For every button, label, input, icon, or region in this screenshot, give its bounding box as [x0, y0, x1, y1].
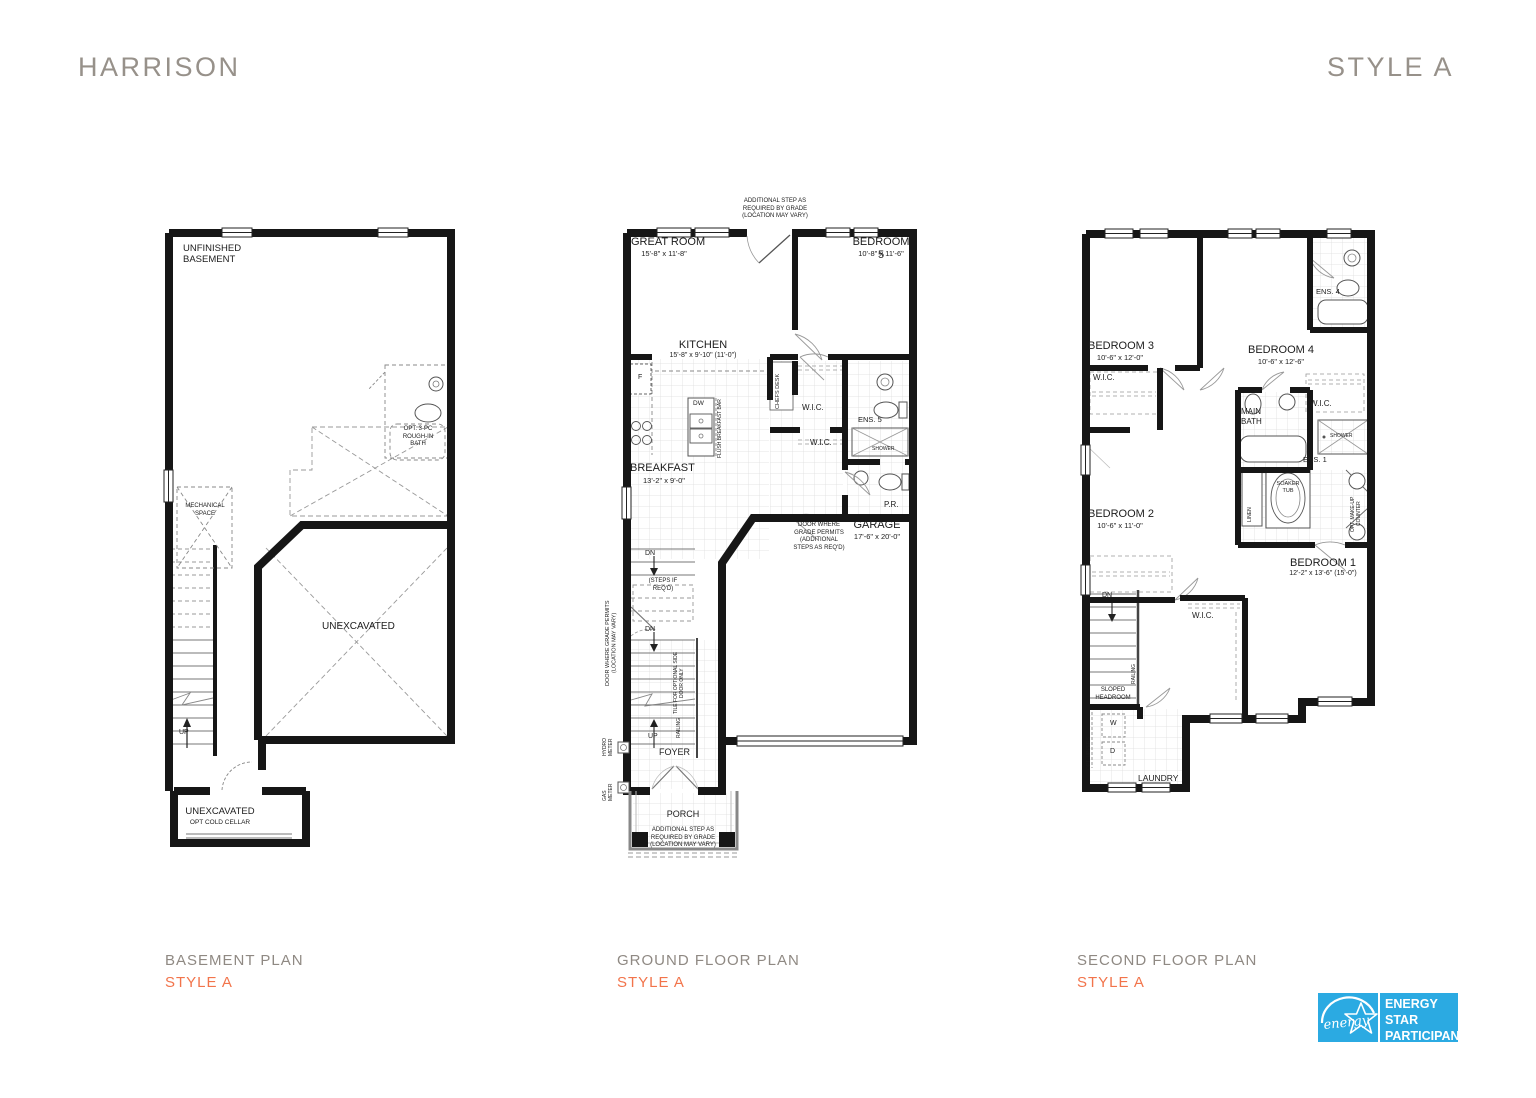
note-porch-step: ADDITIONAL STEP AS REQUIRED BY GRADE (LO… [644, 827, 722, 850]
label-ens4: ENS. 4 [1316, 287, 1340, 296]
label-ens1: ENS. 1 [1303, 455, 1327, 464]
note-side-door-grade: DOOR WHERE GRADE PERMITS (LOCATION MAY V… [605, 582, 618, 704]
room-dim-bedroom2: 10'-6" x 11'-0" [1088, 521, 1152, 530]
caption-second-plan: SECOND FLOOR PLAN [1077, 952, 1257, 969]
label-shower-ground: SHOWER [872, 446, 895, 452]
room-label-unexcavated: UNEXCAVATED [322, 621, 394, 633]
label-railing-second: RAILING [1131, 642, 1137, 684]
room-dim-bedroom4: 10'-6" x 12'-6" [1245, 357, 1317, 366]
label-wic-lower: W.I.C. [810, 438, 832, 448]
room-label-cold-cellar: UNEXCAVATED [174, 806, 266, 817]
label-powder-room: P.R. [884, 500, 899, 510]
room-label-porch: PORCH [640, 809, 726, 820]
label-ens5: ENS. 5 [858, 415, 882, 424]
room-label-breakfast: BREAKFAST [630, 462, 695, 475]
note-makeup-counter: OPT. MAKE-UP COUNTER [1350, 488, 1362, 540]
room-dim-breakfast: 13'-2" x 9'-0" [630, 476, 698, 485]
room-label-cold-cellar-sub: OPT COLD CELLAR [174, 819, 266, 827]
note-top-step: ADDITIONAL STEP AS REQUIRED BY GRADE (LO… [735, 198, 815, 221]
room-label-garage: GARAGE [846, 519, 908, 532]
label-flush-breakfast-bar: FLUSH BREAKFAST BAR [717, 398, 723, 458]
room-label-laundry: LAUNDRY [1138, 773, 1178, 783]
label-linen: LINEN [1247, 474, 1253, 522]
energy-star-text: ENERGY STAR PARTICIPANT [1385, 997, 1467, 1044]
label-dryer: D [1110, 748, 1115, 756]
label-wic-bedroom3: W.I.C. [1093, 373, 1115, 383]
label-washer: W [1110, 720, 1117, 728]
room-dim-great-room: 15'-8" x 11'-8" [631, 249, 697, 258]
label-opt-uppers: OPT. UPPERS [1086, 722, 1092, 770]
stair-label-dn-second: DN [1102, 592, 1112, 600]
room-dim-bedroom5: 10'-8" x 11'-6" [850, 249, 912, 258]
basement-plan-drawing [164, 228, 451, 843]
label-shower-second: SHOWER [1330, 433, 1353, 439]
label-wic-bedroom4: W.I.C. [1310, 399, 1332, 409]
room-dim-bedroom1: 12'-2" x 13'-6" (15'-0") [1274, 570, 1372, 578]
label-railing-ground: RAILING [676, 698, 682, 738]
brochure-page: HARRISON STYLE A [0, 0, 1536, 1098]
room-label-unfinished-basement: UNFINISHED BASEMENT [183, 243, 241, 266]
room-label-bedroom3: BEDROOM 3 [1088, 340, 1154, 353]
caption-second-style: STYLE A [1077, 974, 1145, 991]
room-dim-kitchen: 15'-8" x 9'-10" (11'-0") [656, 352, 750, 360]
caption-basement-plan: BASEMENT PLAN [165, 952, 304, 969]
room-label-bedroom4: BEDROOM 4 [1245, 344, 1317, 357]
room-label-great-room: GREAT ROOM [631, 236, 705, 249]
note-sloped-headroom: SLOPED HEADROOM [1090, 687, 1136, 702]
note-garage-door-grade: DOOR WHERE GRADE PERMITS (ADDITIONAL STE… [788, 522, 850, 552]
ground-plan-drawing [618, 228, 913, 857]
label-dishwasher: DW [693, 400, 704, 408]
room-dim-bedroom3: 10'-6" x 12'-0" [1088, 353, 1152, 362]
label-fridge: F [638, 374, 642, 382]
label-hydro-meter: HYDRO METER [602, 712, 614, 756]
stair-label-up-basement: UP [179, 729, 189, 737]
room-dim-garage: 17'-6" x 20'-0" [846, 532, 908, 541]
room-label-bedroom2: BEDROOM 2 [1088, 508, 1154, 521]
stair-label-dn1: DN [645, 550, 655, 558]
room-label-mechanical-space: MECHANICAL SPACE [178, 503, 232, 518]
caption-basement-style: STYLE A [165, 974, 233, 991]
note-steps-if-reqd: (STEPS IF REQ'D) [639, 578, 687, 593]
stair-label-up-ground: UP [648, 733, 658, 741]
label-wic-upper: W.I.C. [802, 403, 824, 413]
caption-ground-style: STYLE A [617, 974, 685, 991]
energy-star-logo: energy ENERGY STAR PARTICIPANT [1318, 993, 1458, 1042]
room-label-opt-bath: OPT. 3-PC ROUGH-IN BATH [390, 426, 446, 449]
label-gas-meter: GAS METER [602, 765, 614, 801]
caption-ground-plan: GROUND FLOOR PLAN [617, 952, 800, 969]
label-wic-bedroom1: W.I.C. [1192, 611, 1214, 621]
floorplan-drawing [0, 0, 1536, 1098]
stair-label-dn2: DN [645, 626, 655, 634]
label-main-bath: MAIN BATH [1241, 407, 1262, 426]
label-chefs-desk: CHEFS DESK [775, 363, 782, 409]
room-label-foyer: FOYER [659, 747, 690, 758]
label-soaker-tub: SOAKER TUB [1268, 481, 1308, 495]
room-label-kitchen: KITCHEN [660, 339, 746, 352]
room-label-bedroom1: BEDROOM 1 [1278, 557, 1368, 570]
